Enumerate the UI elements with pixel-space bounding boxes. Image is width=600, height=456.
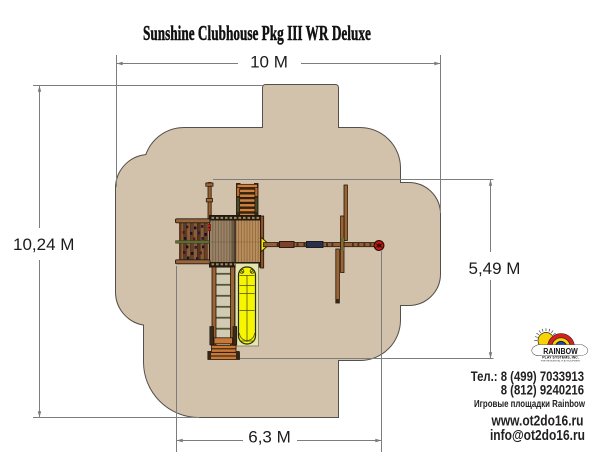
svg-text:PLAY SYSTEMS, INC.: PLAY SYSTEMS, INC. bbox=[542, 356, 579, 360]
svg-text:FINE RESIDENTIAL PLAY EQUIPMEN: FINE RESIDENTIAL PLAY EQUIPMENT bbox=[541, 360, 581, 363]
svg-text:5,49 М: 5,49 М bbox=[469, 259, 521, 278]
svg-text:info@ot2do16.ru: info@ot2do16.ru bbox=[490, 427, 585, 444]
svg-text:8 (812) 9240216: 8 (812) 9240216 bbox=[501, 381, 584, 398]
svg-text:6,3 М: 6,3 М bbox=[248, 428, 291, 447]
svg-text:10 М: 10 М bbox=[250, 53, 288, 72]
svg-text:Sunshine Clubhouse Pkg III WR: Sunshine Clubhouse Pkg III WR Deluxe bbox=[143, 21, 371, 45]
svg-text:10,24 М: 10,24 М bbox=[13, 235, 74, 254]
svg-text:Игровые площадки Rainbow: Игровые площадки Rainbow bbox=[474, 398, 586, 409]
